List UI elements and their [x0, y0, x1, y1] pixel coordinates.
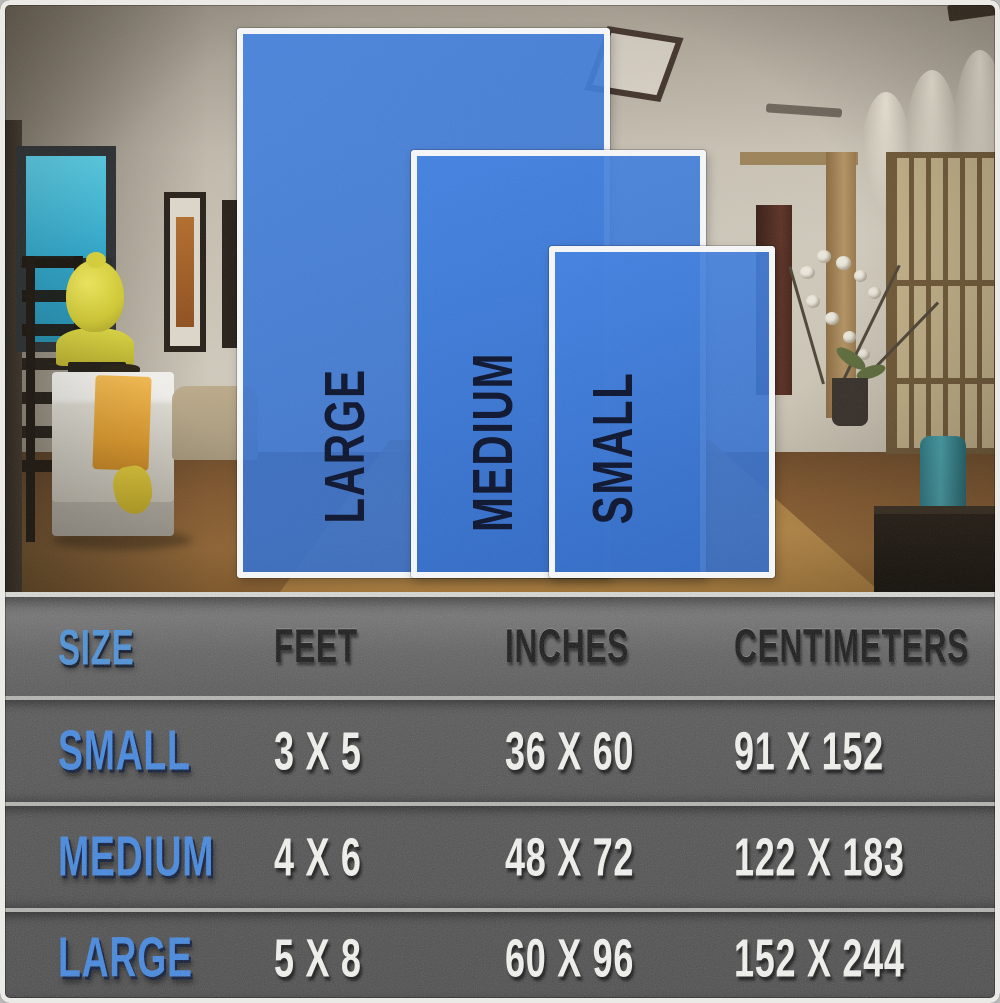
orchid-flower: [825, 312, 839, 325]
cell-feet: 5 X 8: [212, 933, 408, 983]
header-cell-size: SIZE: [0, 624, 212, 670]
room-divider-screen: [886, 152, 1000, 454]
screen-rail: [892, 280, 994, 286]
room-photo: LARGE MEDIUM SMALL: [0, 0, 1000, 592]
chair-post: [26, 256, 35, 542]
cell-inches: 36 X 60: [408, 726, 726, 776]
orchid-flower: [843, 331, 856, 343]
rug-label-medium: MEDIUM: [460, 352, 525, 532]
header-cell-inches: INCHES: [408, 625, 726, 669]
rug-label-large: LARGE: [312, 368, 377, 523]
orchid-flower: [800, 266, 815, 279]
cell-size: LARGE: [0, 932, 212, 984]
cell-inches: 48 X 72: [408, 832, 726, 882]
orchid-flower: [836, 256, 851, 270]
cell-feet: 3 X 5: [212, 726, 408, 776]
orchid-flower: [806, 295, 820, 308]
orchid-stem: [788, 266, 825, 384]
header-cell-centimeters: CENTIMETERS: [726, 625, 1000, 669]
table-row-small: SMALL 3 X 5 36 X 60 91 X 152: [0, 696, 1000, 802]
orchid-planter: [832, 378, 868, 426]
buddha-ushnisha: [86, 252, 106, 268]
rug-label-small: SMALL: [580, 372, 645, 525]
header-cell-feet: FEET: [212, 625, 408, 669]
buddha-statue-head: [66, 260, 124, 332]
cell-size: SMALL: [0, 725, 212, 777]
table-row-medium: MEDIUM 4 X 6 48 X 72 122 X 183: [0, 802, 1000, 908]
size-table: SIZE FEET INCHES CENTIMETERS SMALL 3 X 5…: [0, 592, 1000, 1003]
orange-runner: [92, 375, 151, 471]
wall-art-matte: [170, 198, 200, 346]
cell-feet: 4 X 6: [212, 832, 408, 882]
buddha-statue-body: [56, 328, 134, 366]
wall-art-frame: [164, 192, 206, 352]
cell-centimeters: 122 X 183: [726, 832, 1000, 882]
cell-centimeters: 91 X 152: [726, 726, 1000, 776]
wall-art-print: [176, 217, 194, 327]
orchid-flower: [868, 287, 881, 299]
screen-rail: [892, 378, 994, 384]
orchid-flower: [854, 270, 867, 282]
dark-sideboard: [874, 506, 1000, 592]
table-row-large: LARGE 5 X 8 60 X 96 152 X 244: [0, 908, 1000, 1003]
cell-size: MEDIUM: [0, 831, 212, 883]
cell-inches: 60 X 96: [408, 933, 726, 983]
table-header-row: SIZE FEET INCHES CENTIMETERS: [0, 597, 1000, 696]
rug-overlay-small: SMALL: [549, 246, 775, 578]
rug-size-infographic: LARGE MEDIUM SMALL SIZE FEET INCHES CENT…: [0, 0, 1000, 1003]
orchid-flower: [817, 250, 831, 263]
cell-centimeters: 152 X 244: [726, 933, 1000, 983]
